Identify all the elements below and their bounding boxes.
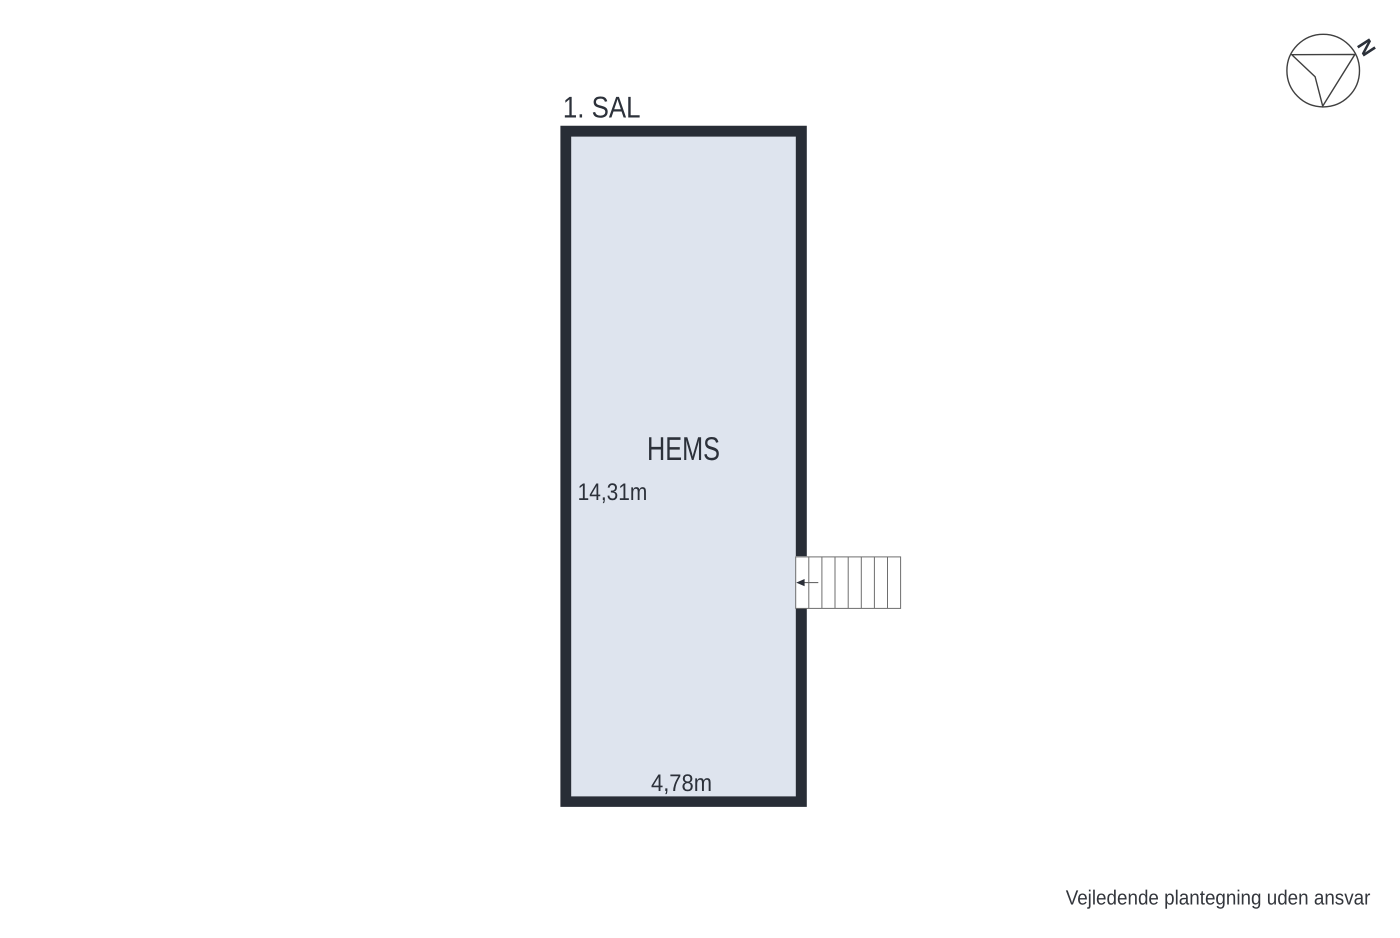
svg-text:14,31m: 14,31m: [578, 479, 648, 506]
svg-text:Vejledende plantegning uden an: Vejledende plantegning uden ansvar: [1066, 887, 1371, 910]
svg-text:HEMS: HEMS: [647, 430, 720, 467]
svg-text:1. SAL: 1. SAL: [563, 91, 641, 124]
svg-text:4,78m: 4,78m: [651, 770, 712, 797]
